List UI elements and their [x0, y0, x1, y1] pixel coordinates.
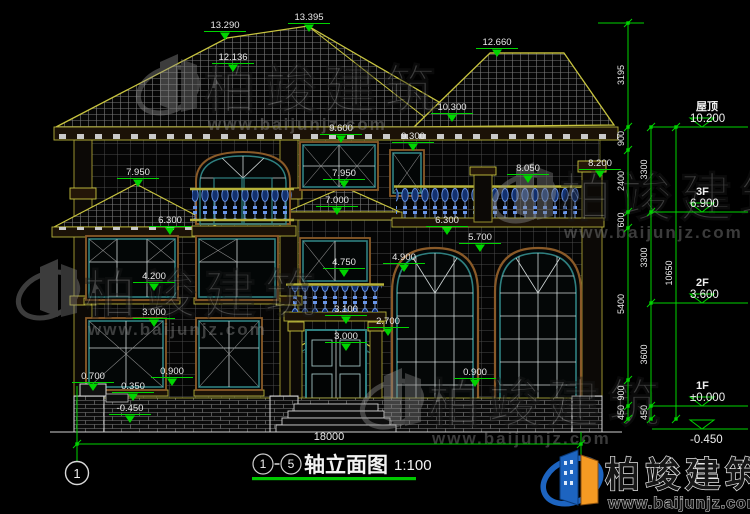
chain-dimension-value: 900 — [616, 131, 626, 146]
chain-dimension-value: 3195 — [616, 65, 626, 85]
svg-text:7.950: 7.950 — [332, 168, 356, 179]
level-name: 3F — [696, 186, 709, 198]
watermark-site: www.baijunjz.com — [563, 223, 743, 242]
watermark-brand: 柏竣建筑 — [560, 170, 750, 228]
elevation-drawing: 柏竣建筑www.baijunjz.com柏竣建筑www.baijunjz.com… — [0, 0, 750, 514]
garden-wall — [106, 394, 128, 402]
title-axis-end: 5 — [288, 457, 295, 471]
watermark-brand: 柏竣建筑 — [428, 376, 668, 434]
level-value: 10.200 — [690, 113, 725, 125]
svg-text:8.050: 8.050 — [516, 163, 540, 174]
cad-viewport: 柏竣建筑www.baijunjz.com柏竣建筑www.baijunjz.com… — [0, 0, 750, 514]
svg-text:4.200: 4.200 — [142, 271, 166, 282]
watermark-site: www.baijunjz.com — [431, 429, 611, 448]
chain-dimension-value: 600 — [616, 212, 626, 227]
svg-text:7.000: 7.000 — [325, 195, 349, 206]
svg-text:8.200: 8.200 — [588, 158, 612, 169]
svg-text:10.300: 10.300 — [437, 102, 466, 113]
svg-text:0.900: 0.900 — [463, 367, 487, 378]
logo-brand-text: 柏竣建筑 — [605, 455, 750, 495]
chain-dimension-value: 450 — [616, 405, 626, 420]
chain-dimension-value: 5400 — [616, 294, 626, 314]
level-name: 1F — [696, 380, 709, 392]
svg-text:3.000: 3.000 — [142, 307, 166, 318]
level-value: -0.450 — [690, 434, 723, 446]
svg-text:3.100: 3.100 — [334, 304, 358, 315]
svg-text:5.700: 5.700 — [468, 232, 492, 243]
level-value: 3.600 — [690, 289, 719, 301]
level-value: 6.900 — [690, 198, 719, 210]
level-marker: 屋顶10.200 — [652, 100, 748, 127]
watermark-site: www.baijunjz.com — [207, 115, 387, 134]
window-3f-center — [300, 142, 378, 190]
svg-text:2.700: 2.700 — [376, 316, 400, 327]
watermark-brand: 柏竣建筑 — [84, 267, 324, 325]
svg-text:13.290: 13.290 — [210, 20, 239, 31]
axis-bubble: 1 — [66, 462, 89, 485]
level-value: ±0.000 — [690, 392, 725, 404]
svg-text:12.660: 12.660 — [482, 37, 511, 48]
svg-text:4.900: 4.900 — [392, 252, 416, 263]
svg-text:9.600: 9.600 — [329, 123, 353, 134]
logo-site-text: www.baijunjz.com — [607, 495, 750, 512]
title-axis-start: 1 — [260, 457, 267, 471]
chain-dimension-value: 900 — [616, 385, 626, 400]
svg-text:4.750: 4.750 — [332, 257, 356, 268]
svg-text:6.300: 6.300 — [158, 215, 182, 226]
chain-dimension-value: 2400 — [616, 171, 626, 191]
title-underline — [252, 477, 416, 480]
svg-text:9.300: 9.300 — [401, 131, 425, 142]
chain-dimension-value: 450 — [639, 405, 649, 420]
string-course — [192, 226, 296, 236]
chain-dimension-value: 3300 — [639, 159, 649, 179]
svg-text:0.900: 0.900 — [160, 366, 184, 377]
brand-logo: 柏竣建筑 www.baijunjz.com — [536, 450, 750, 513]
svg-text:-0.450: -0.450 — [117, 403, 144, 414]
logo-building-blue — [560, 450, 578, 505]
title-block: 1 5 轴立面图 1:100 — [252, 453, 432, 480]
pilaster-capital — [70, 188, 96, 199]
svg-text:7.950: 7.950 — [126, 167, 150, 178]
chain-dimension-value: 10650 — [664, 260, 674, 285]
svg-text:0.350: 0.350 — [121, 381, 145, 392]
svg-text:13.395: 13.395 — [294, 12, 323, 23]
porch-eave-center — [284, 212, 402, 220]
svg-text:0.700: 0.700 — [81, 371, 105, 382]
drawing-scale: 1:100 — [394, 457, 432, 474]
overall-width-value: 18000 — [314, 431, 345, 443]
chain-dimension-value: 3600 — [639, 344, 649, 364]
logo-building-orange — [581, 455, 598, 505]
balcony-3f-left — [190, 189, 294, 220]
level-name: 2F — [696, 277, 709, 289]
drawing-title: 轴立面图 — [304, 453, 388, 477]
axis-bubble-label: 1 — [73, 466, 80, 481]
svg-text:6.300: 6.300 — [435, 215, 459, 226]
svg-text:12.136: 12.136 — [218, 52, 247, 63]
svg-text:3.000: 3.000 — [334, 331, 358, 342]
chain-dimension-value: 3300 — [639, 247, 649, 267]
watermark-site: www.baijunjz.com — [87, 320, 267, 339]
level-name: 屋顶 — [696, 100, 718, 113]
watermark-brand: 柏竣建筑 — [204, 62, 444, 120]
base-pier — [74, 396, 104, 432]
